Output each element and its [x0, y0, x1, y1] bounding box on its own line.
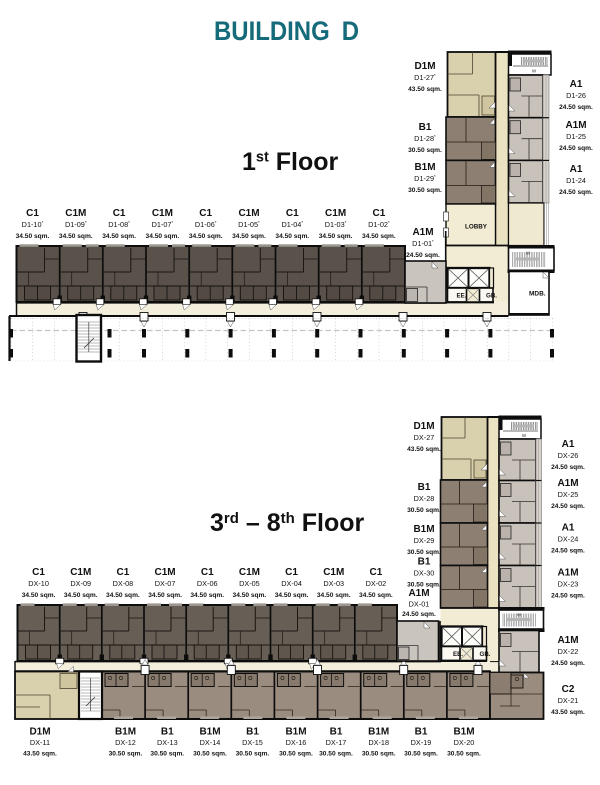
svg-text:34.50 sqm.: 34.50 sqm.	[22, 592, 56, 599]
svg-text:D1-03*: D1-03*	[325, 220, 347, 229]
svg-text:DX-17: DX-17	[326, 738, 347, 747]
svg-text:B1: B1	[246, 727, 259, 738]
svg-text:D1-01*: D1-01*	[412, 239, 434, 248]
svg-text:D1-10*: D1-10*	[22, 220, 44, 229]
svg-text:A1M: A1M	[557, 635, 578, 646]
svg-text:24.50 sqm.: 24.50 sqm.	[559, 104, 593, 111]
svg-text:C1: C1	[370, 567, 383, 578]
svg-text:D1-07*: D1-07*	[152, 220, 174, 229]
svg-text:BUILDING D: BUILDING D	[214, 16, 359, 46]
svg-text:DX-15: DX-15	[242, 738, 263, 747]
svg-text:DX-05: DX-05	[239, 579, 260, 588]
svg-text:34.50 sqm.: 34.50 sqm.	[16, 233, 50, 240]
svg-text:30.50 sqm.: 30.50 sqm.	[408, 187, 442, 194]
svg-text:24.50 sqm.: 24.50 sqm.	[406, 252, 440, 259]
svg-text:30.50 sqm.: 30.50 sqm.	[407, 507, 441, 514]
svg-text:DX-08: DX-08	[113, 579, 134, 588]
svg-text:24.50 sqm.: 24.50 sqm.	[551, 548, 585, 555]
svg-text:34.50 sqm.: 34.50 sqm.	[190, 592, 224, 599]
svg-text:34.50 sqm.: 34.50 sqm.	[64, 592, 98, 599]
svg-text:34.50 sqm.: 34.50 sqm.	[362, 233, 396, 240]
svg-text:34.50 sqm.: 34.50 sqm.	[275, 233, 309, 240]
svg-text:34.50 sqm.: 34.50 sqm.	[146, 233, 180, 240]
svg-text:DX-16: DX-16	[286, 738, 307, 747]
svg-text:A1: A1	[570, 79, 583, 90]
svg-text:D1-27*: D1-27*	[414, 73, 436, 82]
svg-text:24.50 sqm.: 24.50 sqm.	[551, 593, 585, 600]
svg-text:DX-18: DX-18	[368, 738, 389, 747]
svg-text:DX-24: DX-24	[558, 535, 579, 544]
svg-text:D1-05*: D1-05*	[238, 220, 260, 229]
svg-text:C1: C1	[285, 567, 298, 578]
svg-text:D1-04*: D1-04*	[281, 220, 303, 229]
svg-text:DX-19: DX-19	[411, 738, 432, 747]
svg-text:C1M: C1M	[155, 567, 176, 578]
svg-text:DX-29: DX-29	[414, 536, 435, 545]
svg-text:C1: C1	[201, 567, 214, 578]
svg-text:C1: C1	[286, 208, 299, 219]
svg-text:24.50 sqm.: 24.50 sqm.	[402, 611, 436, 618]
svg-text:C1M: C1M	[70, 567, 91, 578]
svg-text:A1: A1	[570, 164, 583, 175]
svg-text:34.50 sqm.: 34.50 sqm.	[232, 233, 266, 240]
svg-text:DX-27: DX-27	[414, 433, 435, 442]
svg-text:D1-24: D1-24	[566, 176, 586, 185]
svg-text:30.50 sqm.: 30.50 sqm.	[362, 751, 396, 758]
svg-text:34.50 sqm.: 34.50 sqm.	[59, 233, 93, 240]
svg-text:C2: C2	[562, 684, 575, 695]
svg-text:DX-14: DX-14	[200, 738, 221, 747]
svg-text:B1M: B1M	[285, 727, 306, 738]
svg-text:D1-26: D1-26	[566, 91, 586, 100]
svg-text:24.50 sqm.: 24.50 sqm.	[559, 189, 593, 196]
svg-text:B1M: B1M	[115, 727, 136, 738]
svg-text:34.50 sqm.: 34.50 sqm.	[319, 233, 353, 240]
svg-text:30.50 sqm.: 30.50 sqm.	[150, 751, 184, 758]
svg-text:B1: B1	[415, 727, 428, 738]
svg-text:C1: C1	[32, 567, 45, 578]
svg-text:B1M: B1M	[368, 727, 389, 738]
svg-text:30.50 sqm.: 30.50 sqm.	[109, 751, 143, 758]
svg-text:B1M: B1M	[199, 727, 220, 738]
svg-text:B1: B1	[330, 727, 343, 738]
svg-text:GB.: GB.	[480, 651, 491, 658]
svg-text:GB.: GB.	[486, 293, 497, 300]
svg-text:DX-30: DX-30	[414, 569, 435, 578]
svg-text:24.50 sqm.: 24.50 sqm.	[551, 464, 585, 471]
svg-text:34.50 sqm.: 34.50 sqm.	[317, 592, 351, 599]
svg-text:24.50 sqm.: 24.50 sqm.	[551, 660, 585, 667]
svg-text:DX-01: DX-01	[409, 600, 430, 609]
svg-text:A1: A1	[562, 523, 575, 534]
svg-text:43.50 sqm.: 43.50 sqm.	[407, 446, 441, 453]
svg-text:C1M: C1M	[65, 208, 86, 219]
svg-text:D1-25: D1-25	[566, 132, 586, 141]
svg-text:C1M: C1M	[239, 567, 260, 578]
svg-text:30.50 sqm.: 30.50 sqm.	[319, 751, 353, 758]
svg-text:43.50 sqm.: 43.50 sqm.	[23, 751, 57, 758]
svg-text:30.50 sqm.: 30.50 sqm.	[407, 549, 441, 556]
svg-text:34.50 sqm.: 34.50 sqm.	[275, 592, 309, 599]
svg-text:B1M: B1M	[414, 162, 435, 173]
svg-text:D1-06*: D1-06*	[195, 220, 217, 229]
svg-text:34.50 sqm.: 34.50 sqm.	[102, 233, 136, 240]
svg-text:A1M: A1M	[557, 478, 578, 489]
svg-text:30.50 sqm.: 30.50 sqm.	[404, 751, 438, 758]
svg-text:D1-09*: D1-09*	[65, 220, 87, 229]
svg-text:C1M: C1M	[238, 208, 259, 219]
svg-text:DX-11: DX-11	[30, 738, 50, 747]
svg-text:D1-02*: D1-02*	[368, 220, 390, 229]
svg-text:34.50 sqm.: 34.50 sqm.	[233, 592, 267, 599]
svg-text:C1M: C1M	[152, 208, 173, 219]
svg-text:DX-12: DX-12	[115, 738, 136, 747]
svg-text:DX-26: DX-26	[558, 451, 579, 460]
svg-text:C1: C1	[199, 208, 212, 219]
svg-text:30.50 sqm.: 30.50 sqm.	[447, 751, 481, 758]
svg-text:DX-10: DX-10	[28, 579, 49, 588]
svg-text:30.50 sqm.: 30.50 sqm.	[236, 751, 270, 758]
svg-text:A1M: A1M	[565, 120, 586, 131]
svg-text:B1: B1	[418, 557, 431, 568]
svg-text:A1M: A1M	[412, 227, 433, 238]
svg-text:DX-07: DX-07	[155, 579, 176, 588]
svg-text:A1M: A1M	[557, 568, 578, 579]
svg-text:MDB.: MDB.	[529, 291, 546, 298]
svg-text:A1M: A1M	[408, 588, 429, 599]
svg-text:C1M: C1M	[323, 567, 344, 578]
svg-text:DX-04: DX-04	[281, 579, 302, 588]
svg-text:DX-13: DX-13	[157, 738, 178, 747]
svg-text:B1: B1	[161, 727, 174, 738]
svg-text:DX-02: DX-02	[366, 579, 387, 588]
svg-text:30.50 sqm.: 30.50 sqm.	[279, 751, 313, 758]
svg-text:C1: C1	[117, 567, 130, 578]
svg-text:C1: C1	[26, 208, 39, 219]
svg-text:B1: B1	[418, 482, 431, 493]
svg-text:D1-29*: D1-29*	[414, 174, 436, 183]
svg-text:DX-25: DX-25	[558, 490, 579, 499]
svg-text:B1M: B1M	[453, 727, 474, 738]
svg-text:34.50 sqm.: 34.50 sqm.	[359, 592, 393, 599]
svg-text:D1-08*: D1-08*	[108, 220, 130, 229]
svg-text:34.50 sqm.: 34.50 sqm.	[106, 592, 140, 599]
svg-text:DX-22: DX-22	[558, 647, 579, 656]
svg-text:D1M: D1M	[414, 61, 435, 72]
svg-text:DX-21: DX-21	[558, 696, 579, 705]
svg-text:DX-20: DX-20	[454, 738, 475, 747]
svg-text:EE.: EE.	[453, 651, 463, 658]
svg-text:30.50 sqm.: 30.50 sqm.	[408, 147, 442, 154]
svg-text:B1: B1	[419, 122, 432, 133]
svg-text:DX-28: DX-28	[414, 494, 435, 503]
svg-text:D1-28*: D1-28*	[414, 134, 436, 143]
svg-text:DX-03: DX-03	[323, 579, 344, 588]
svg-text:DX-06: DX-06	[197, 579, 218, 588]
svg-text:C1M: C1M	[325, 208, 346, 219]
svg-text:C1: C1	[373, 208, 386, 219]
svg-text:LOBBY: LOBBY	[465, 224, 488, 231]
svg-text:DX-23: DX-23	[558, 580, 579, 589]
svg-text:C1: C1	[113, 208, 126, 219]
svg-text:34.50 sqm.: 34.50 sqm.	[148, 592, 182, 599]
svg-text:24.50 sqm.: 24.50 sqm.	[551, 503, 585, 510]
svg-text:43.50 sqm.: 43.50 sqm.	[551, 709, 585, 716]
svg-text:D1M: D1M	[29, 727, 50, 738]
svg-text:EE.: EE.	[457, 293, 467, 300]
svg-text:30.50 sqm.: 30.50 sqm.	[193, 751, 227, 758]
svg-text:D1M: D1M	[413, 421, 434, 432]
svg-text:34.50 sqm.: 34.50 sqm.	[189, 233, 223, 240]
svg-text:DX-09: DX-09	[70, 579, 91, 588]
svg-text:A1: A1	[562, 439, 575, 450]
svg-text:B1M: B1M	[413, 524, 434, 535]
svg-text:43.50 sqm.: 43.50 sqm.	[408, 86, 442, 93]
svg-text:24.50 sqm.: 24.50 sqm.	[559, 145, 593, 152]
